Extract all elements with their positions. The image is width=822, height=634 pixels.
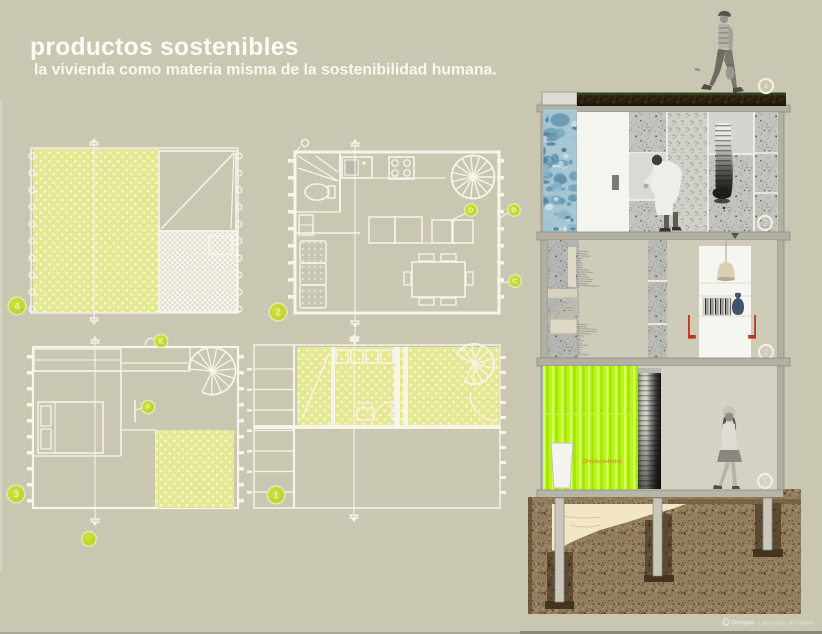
svg-text:C: C [724,620,728,626]
svg-text:C: C [512,277,518,286]
svg-text:Diseño interior: Diseño interior [583,459,623,465]
svg-text:B: B [511,206,517,215]
svg-text:3: 3 [13,490,19,501]
svg-text:2: 2 [275,308,281,319]
svg-text:4: 4 [764,82,769,91]
svg-text:4: 4 [14,302,20,313]
svg-text:E: E [158,337,163,346]
svg-text:F: F [146,403,151,412]
svg-text:- Laboratorio de Ciudad: - Laboratorio de Ciudad [755,621,813,627]
svg-text:1: 1 [273,491,279,502]
svg-text:D: D [468,206,474,215]
svg-text:3: 3 [763,219,768,228]
svg-text:Octopia: Octopia [732,621,755,627]
svg-text:1: 1 [763,477,768,486]
svg-text:la vivienda como materia misma: la vivienda como materia misma de la sos… [34,62,497,79]
svg-text:productos sostenibles: productos sostenibles [30,34,299,61]
svg-text:2: 2 [764,348,769,357]
